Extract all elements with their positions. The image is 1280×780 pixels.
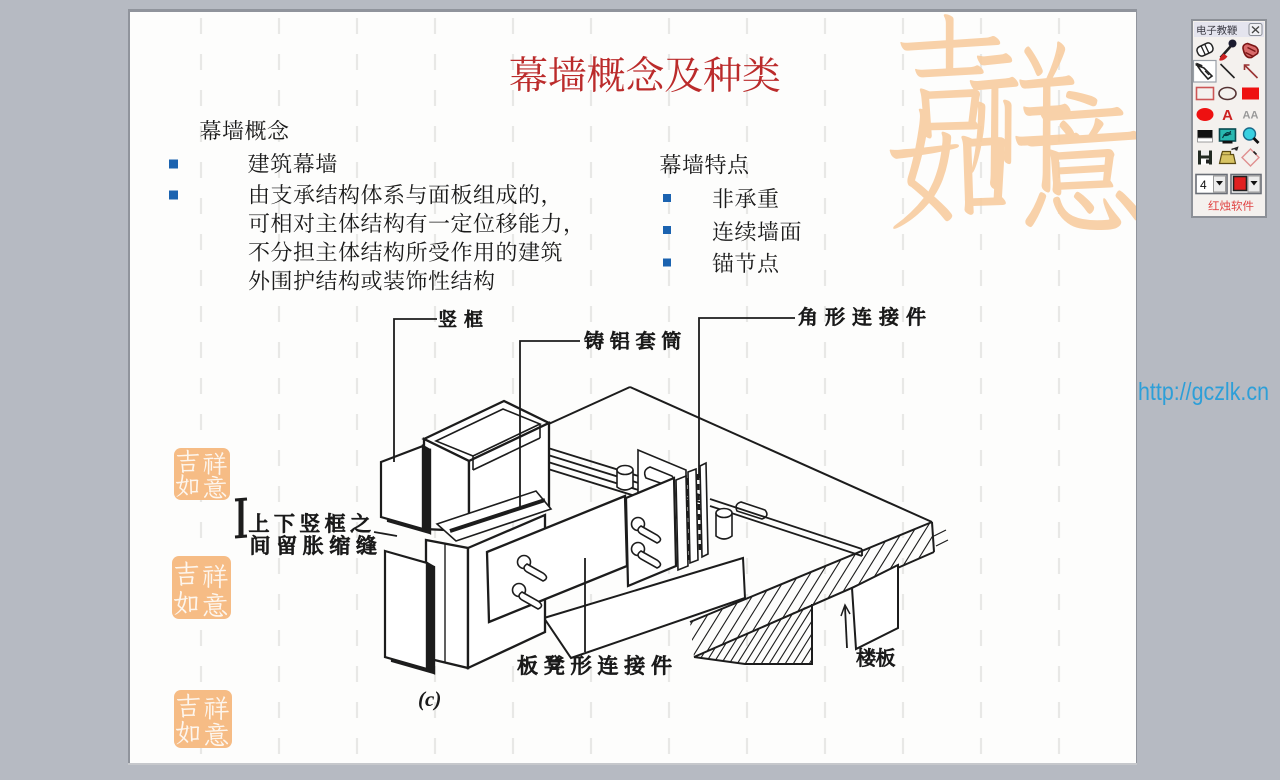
svg-text:(c): (c) bbox=[418, 687, 441, 711]
svg-text:A: A bbox=[1222, 107, 1233, 124]
svg-text:http://gczlk.cn: http://gczlk.cn bbox=[1138, 378, 1269, 406]
svg-text:AA: AA bbox=[1243, 110, 1259, 122]
svg-text:4: 4 bbox=[1200, 178, 1207, 192]
